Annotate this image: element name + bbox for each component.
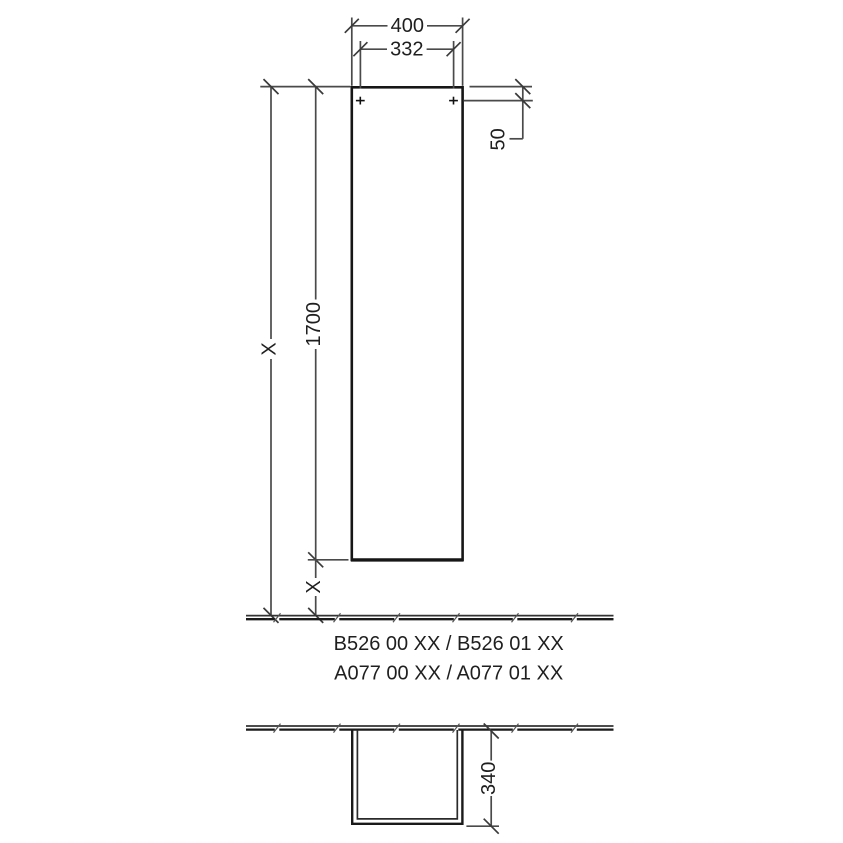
svg-text:1700: 1700 [303, 302, 325, 347]
svg-text:X: X [259, 342, 281, 355]
svg-text:340: 340 [478, 762, 500, 795]
svg-text:332: 332 [390, 39, 423, 61]
svg-text:B526 00 XX / B526 01 XX: B526 00 XX / B526 01 XX [334, 633, 564, 655]
svg-text:400: 400 [391, 15, 424, 37]
svg-text:X: X [303, 580, 325, 593]
svg-text:50: 50 [487, 128, 509, 150]
svg-text:A077 00 XX / A077 01 XX: A077 00 XX / A077 01 XX [334, 663, 563, 685]
